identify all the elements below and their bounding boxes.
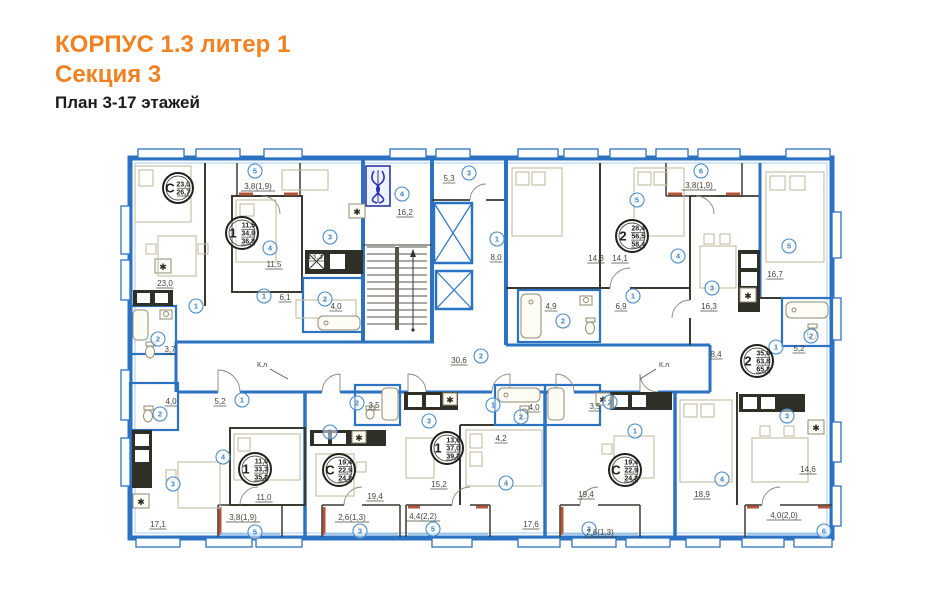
svg-text:3: 3: [328, 233, 332, 242]
room-label-rs-balcony: 32,6(1,3): [582, 522, 617, 537]
svg-text:С: С: [325, 463, 335, 478]
svg-text:13,6: 13,6: [446, 438, 460, 445]
svg-text:15,2: 15,2: [431, 480, 447, 489]
svg-text:33,3: 33,3: [254, 467, 268, 474]
apartment-badge-one-room-bottom-middle: 113,637,039,2: [431, 432, 463, 464]
svg-text:3: 3: [171, 480, 175, 489]
table-icon: [700, 234, 736, 288]
annotation-leaders: [270, 369, 656, 379]
svg-text:5,3: 5,3: [443, 174, 455, 183]
svg-text:19,4: 19,4: [624, 460, 638, 467]
room-label-tr-bath: 24,9: [545, 302, 570, 328]
bathtub-icon: [382, 388, 398, 420]
svg-text:8,0: 8,0: [490, 253, 502, 262]
apartment-badge-two-room-right: 235,663,865,8: [741, 345, 773, 377]
room-label-m-hall: 14,2: [486, 398, 507, 443]
sofa-icon: [282, 170, 328, 190]
elevator-shafts: [434, 203, 472, 309]
bathtub-icon: [318, 316, 360, 330]
room-label-tr-kitchen: 316,3: [700, 281, 719, 311]
toilet-icon: [144, 406, 154, 422]
bed-icon: [680, 400, 732, 482]
svg-text:С: С: [165, 181, 175, 196]
svg-text:34,9: 34,9: [241, 231, 255, 238]
svg-text:65,8: 65,8: [756, 366, 770, 373]
bathtub-icon: [521, 294, 541, 338]
svg-text:4,9: 4,9: [545, 302, 557, 311]
apartment-badge-studio-top-left: С23,026,7: [163, 173, 193, 203]
svg-text:1: 1: [328, 428, 332, 437]
svg-text:✱: ✱: [355, 433, 363, 443]
svg-text:2: 2: [619, 229, 626, 244]
room-label-core-vestibule: 35,3: [443, 166, 476, 183]
svg-text:16,3: 16,3: [701, 302, 717, 311]
svg-text:С: С: [611, 463, 621, 478]
svg-text:3: 3: [785, 412, 789, 421]
svg-text:3,8(1,9): 3,8(1,9): [685, 181, 713, 190]
room-label-core-lift-hall: 18,0: [490, 232, 504, 262]
svg-text:5: 5: [635, 196, 639, 205]
room-label-m-bedroom: 417,6: [499, 476, 540, 529]
svg-text:2: 2: [156, 335, 160, 344]
room-label-bl-bath: 24,0: [153, 397, 177, 421]
svg-text:11,5: 11,5: [242, 223, 255, 230]
svg-text:37,0: 37,0: [446, 446, 460, 453]
room-label-m-balcony: 54,4(2,2): [406, 512, 440, 536]
floor-plan: ✱ ✱ ✱ ✱ ✱ ✱ ✱ ✱: [0, 0, 940, 600]
apartment-badge-one-room-bottom-left: 111,033,335,2: [239, 453, 271, 485]
svg-text:11,0: 11,0: [255, 459, 268, 466]
svg-text:3: 3: [467, 169, 471, 178]
svg-text:1: 1: [633, 427, 637, 436]
svg-text:5: 5: [253, 167, 257, 176]
svg-text:30,6: 30,6: [451, 356, 467, 365]
room-label-tr-hall: 16,9: [615, 289, 640, 311]
annotation-fire-valve-left: К.л: [257, 362, 267, 369]
svg-text:1: 1: [194, 302, 198, 311]
room-label-big-bedroom-1: 516,7: [766, 239, 796, 279]
svg-text:3,7: 3,7: [164, 345, 176, 354]
svg-text:3,8(1,9): 3,8(1,9): [244, 182, 272, 191]
svg-text:✱: ✱: [159, 262, 167, 272]
svg-text:17,6: 17,6: [523, 520, 539, 529]
svg-text:5,2: 5,2: [793, 344, 805, 353]
svg-text:11,0: 11,0: [257, 493, 273, 502]
svg-text:2: 2: [355, 399, 359, 408]
table-icon: [406, 438, 434, 478]
svg-text:4,0: 4,0: [330, 302, 342, 311]
svg-text:4,0(2,0): 4,0(2,0): [770, 511, 798, 520]
room-label-apt1-bedroom: 411,5: [263, 241, 283, 269]
apartment-badge-one-room-top: 111,534,936,8: [226, 217, 258, 249]
bathtub-icon: [133, 310, 148, 340]
sink-icon: [580, 296, 592, 305]
svg-text:5: 5: [431, 525, 435, 534]
svg-text:1: 1: [229, 226, 236, 241]
svg-text:23,0: 23,0: [176, 182, 190, 189]
svg-text:16,7: 16,7: [767, 270, 783, 279]
svg-text:35,2: 35,2: [254, 474, 268, 481]
svg-text:3,5: 3,5: [368, 401, 380, 410]
svg-text:63,8: 63,8: [756, 359, 770, 366]
svg-text:✱: ✱: [137, 497, 145, 507]
svg-text:14,6: 14,6: [800, 465, 816, 474]
svg-text:1: 1: [491, 401, 495, 410]
svg-text:2: 2: [608, 398, 612, 407]
svg-text:✱: ✱: [446, 395, 454, 405]
svg-text:1: 1: [631, 292, 635, 301]
svg-text:3: 3: [358, 527, 362, 536]
svg-text:14,3: 14,3: [588, 254, 604, 263]
svg-text:К.л: К.л: [659, 362, 669, 369]
svg-text:17,1: 17,1: [150, 520, 166, 529]
svg-text:✱: ✱: [353, 207, 361, 217]
sink-icon: [160, 310, 172, 319]
svg-text:1: 1: [774, 343, 778, 352]
apartment-badge-studio-bottom-left: С19,422,924,2: [323, 454, 355, 486]
room-label-corridor: 230,6: [450, 349, 488, 365]
apartment-badge-studio-bottom-right: С19,422,924,2: [609, 454, 641, 486]
svg-text:19,4: 19,4: [578, 490, 594, 499]
bathtub-icon: [548, 388, 564, 420]
svg-text:35,6: 35,6: [756, 351, 770, 358]
bed-icon: [512, 168, 562, 236]
svg-text:58,4: 58,4: [631, 241, 645, 248]
balconies: [218, 163, 832, 537]
room-label-bl-balcony: 53,8(1,9): [226, 513, 262, 539]
svg-text:5,2: 5,2: [214, 397, 226, 406]
svg-text:28,4: 28,4: [631, 226, 645, 233]
svg-text:2: 2: [479, 352, 483, 361]
room-label-core-lobby: 416,2: [395, 187, 414, 217]
svg-text:3: 3: [427, 417, 431, 426]
svg-text:22,9: 22,9: [624, 468, 638, 475]
room-label-apt1-balcony: 53,8(1,9): [241, 164, 275, 191]
room-label-tr-bedroom-2: 414,1: [611, 249, 685, 263]
svg-text:26,7: 26,7: [176, 189, 190, 196]
svg-text:1: 1: [434, 441, 441, 456]
svg-text:1: 1: [262, 292, 266, 301]
svg-text:23,0: 23,0: [157, 279, 173, 288]
svg-text:8,4: 8,4: [710, 350, 722, 359]
svg-text:6: 6: [699, 167, 703, 176]
bathtub-icon: [498, 388, 540, 402]
room-label-bl-living-kitchen: 317,1: [149, 477, 180, 529]
svg-text:4,2: 4,2: [495, 434, 507, 443]
svg-text:5: 5: [253, 528, 257, 537]
room-label-bl-hall: 15,2: [214, 393, 249, 407]
svg-text:✱: ✱: [744, 291, 752, 301]
svg-text:5: 5: [787, 242, 791, 251]
svg-text:2,6(1,3): 2,6(1,3): [338, 513, 366, 522]
svg-text:39,2: 39,2: [446, 453, 460, 460]
svg-text:6,1: 6,1: [279, 293, 291, 302]
svg-text:36,8: 36,8: [241, 238, 255, 245]
room-label-apt1-bath: 24,0: [318, 292, 342, 311]
svg-text:2: 2: [158, 410, 162, 419]
svg-text:4,0: 4,0: [165, 397, 177, 406]
svg-text:К.л: К.л: [257, 362, 267, 369]
svg-text:2: 2: [744, 354, 751, 369]
svg-text:1: 1: [242, 462, 249, 477]
svg-text:4,0: 4,0: [528, 403, 540, 412]
svg-text:2: 2: [323, 295, 327, 304]
room-label-big-kitchen: 314,6: [780, 409, 817, 474]
room-label-big-bath: 25,2: [793, 329, 818, 353]
bathtub-icon: [786, 302, 828, 318]
stairwell-crest-icon: [366, 166, 390, 206]
room-label-ls-bath: 23,5: [350, 396, 380, 410]
svg-text:6: 6: [822, 527, 826, 536]
svg-text:1: 1: [240, 396, 244, 405]
svg-text:4,4(2,2): 4,4(2,2): [409, 512, 437, 521]
annotation-fire-valve-right: К.л: [659, 362, 669, 369]
svg-text:19,4: 19,4: [367, 492, 383, 501]
svg-text:24,2: 24,2: [624, 475, 638, 482]
svg-text:16,2: 16,2: [397, 208, 413, 217]
svg-text:3,8(1,9): 3,8(1,9): [229, 513, 257, 522]
toilet-icon: [586, 318, 596, 334]
svg-text:56,5: 56,5: [631, 234, 645, 241]
svg-text:2: 2: [561, 317, 565, 326]
svg-text:2,6(1,3): 2,6(1,3): [586, 528, 614, 537]
svg-text:19,4: 19,4: [338, 460, 352, 467]
svg-text:11,5: 11,5: [267, 260, 283, 269]
svg-text:3: 3: [710, 284, 714, 293]
svg-text:13,3: 13,3: [307, 252, 323, 261]
svg-text:22,9: 22,9: [338, 468, 352, 475]
svg-text:6,9: 6,9: [615, 302, 627, 311]
floor-plan-page: КОРПУС 1.3 литер 1 Секция 3 План 3-17 эт…: [0, 0, 940, 600]
svg-text:24,2: 24,2: [338, 475, 352, 482]
svg-text:2: 2: [519, 413, 523, 422]
svg-text:14,1: 14,1: [612, 254, 628, 263]
room-label-big-bedroom-2: 418,9: [693, 472, 729, 499]
svg-text:3,5: 3,5: [589, 402, 601, 411]
room-label-tr-balcony: 63,8(1,9): [682, 164, 716, 190]
apartment-badges-layer: С23,026,7111,534,936,8228,456,558,4235,6…: [163, 173, 773, 486]
svg-text:1: 1: [495, 235, 499, 244]
svg-text:18,9: 18,9: [694, 490, 710, 499]
apartment-badge-two-room-top-right: 228,456,558,4: [616, 220, 648, 252]
svg-text:2: 2: [809, 332, 813, 341]
svg-text:✱: ✱: [812, 423, 820, 433]
